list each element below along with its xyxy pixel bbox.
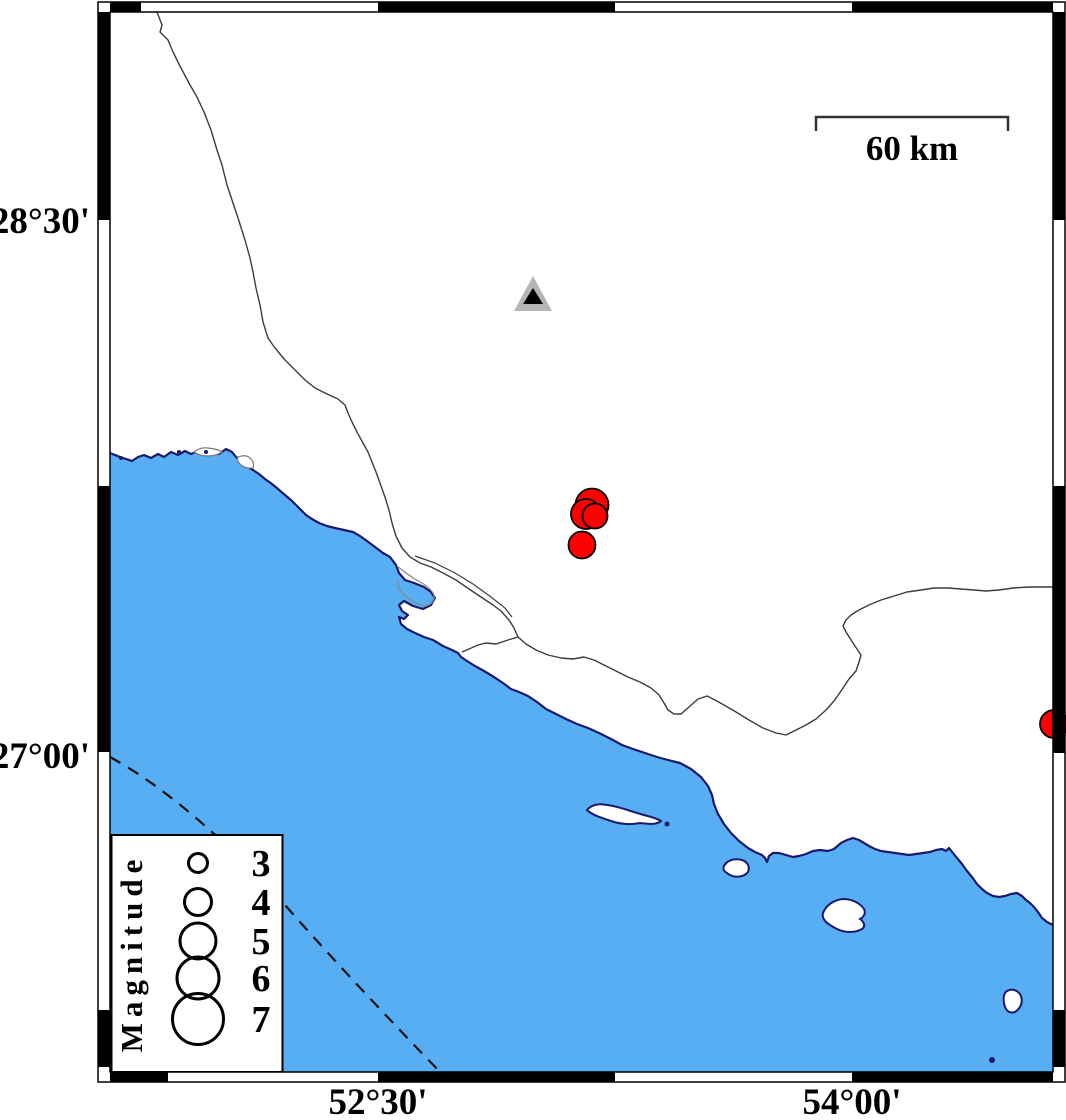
islet	[119, 456, 123, 460]
earthquake-marker	[583, 504, 608, 529]
legend-title: Magnitude	[114, 854, 149, 1053]
island-small	[723, 859, 748, 876]
legend-magnitude-label: 4	[252, 882, 271, 924]
islet	[204, 450, 208, 454]
legend-magnitude-label: 5	[252, 921, 271, 963]
legend-magnitude-label: 3	[252, 843, 271, 885]
earthquake-marker	[569, 532, 596, 559]
lat-label-2700: 27°00'	[0, 736, 90, 777]
legend-magnitude-label: 7	[252, 999, 271, 1041]
scale-bar-label: 60 km	[866, 129, 958, 168]
lon-label-5230: 52°30'	[328, 1082, 427, 1120]
legend-magnitude-label: 6	[252, 958, 271, 1000]
islet	[665, 822, 670, 827]
islet	[989, 1057, 995, 1063]
islet	[177, 450, 181, 454]
island-teardrop	[1004, 990, 1022, 1013]
seismicity-map-page: Magnitude 34567 60 km 28°30'	[0, 0, 1066, 1120]
lon-label-5400: 54°00'	[802, 1082, 901, 1120]
map-canvas: Magnitude 34567 60 km 28°30'	[0, 0, 1066, 1120]
lat-label-2830: 28°30'	[0, 201, 90, 242]
